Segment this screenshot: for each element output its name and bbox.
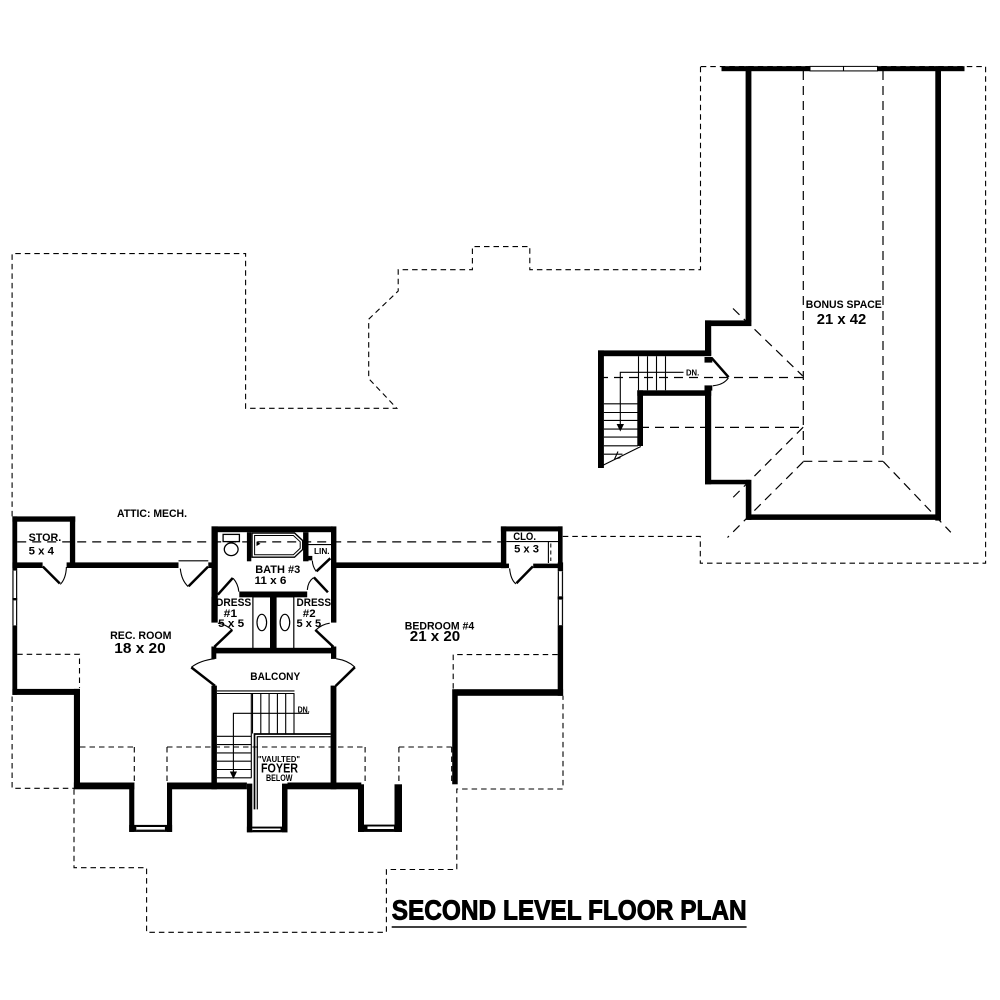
- svg-text:ATTIC: MECH.: ATTIC: MECH.: [117, 508, 187, 520]
- svg-text:5 x 3: 5 x 3: [514, 544, 539, 556]
- svg-text:BELOW: BELOW: [266, 773, 293, 783]
- svg-text:DN.: DN.: [298, 704, 310, 714]
- svg-text:5 x 5: 5 x 5: [297, 618, 322, 630]
- svg-text:DN.: DN.: [686, 368, 699, 378]
- svg-text:18 x 20: 18 x 20: [114, 640, 165, 657]
- svg-text:BONUS SPACE: BONUS SPACE: [806, 299, 882, 311]
- svg-text:STOR.: STOR.: [29, 532, 62, 544]
- svg-text:5 x 5: 5 x 5: [218, 618, 244, 630]
- svg-text:5 x 4: 5 x 4: [29, 546, 55, 558]
- svg-text:21 x 42: 21 x 42: [817, 312, 866, 328]
- svg-text:BALCONY: BALCONY: [250, 671, 301, 683]
- svg-text:21 x 20: 21 x 20: [410, 628, 460, 645]
- svg-text:LIN.: LIN.: [314, 547, 330, 556]
- svg-text:SECOND LEVEL FLOOR PLAN: SECOND LEVEL FLOOR PLAN: [392, 895, 747, 926]
- svg-text:11 x 6: 11 x 6: [255, 575, 287, 587]
- svg-text:CLO.: CLO.: [513, 531, 536, 543]
